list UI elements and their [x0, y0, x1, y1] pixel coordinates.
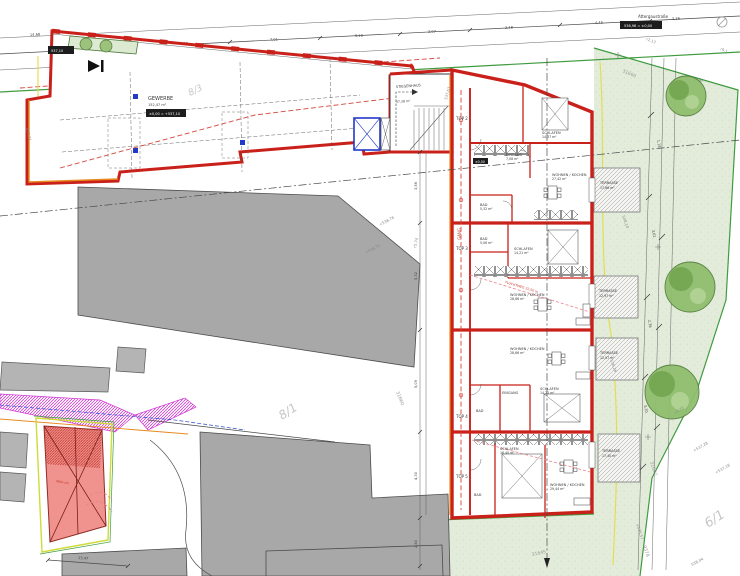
- bush-2: [100, 40, 112, 52]
- apartment-wing: FLUCHTWEG 22,50 m GANG ±0,00 TOP 2 SCHLA…: [450, 70, 595, 518]
- inset-building-4: [0, 472, 26, 502]
- dim-top-2: 7,01: [270, 38, 278, 42]
- storage-row-2: [474, 266, 588, 277]
- steel-column-3: [240, 140, 245, 145]
- inset-building-3: [0, 432, 28, 468]
- u1-wohnen-area: 27,42 m²: [552, 177, 567, 181]
- u3-bad: BAD: [476, 409, 484, 413]
- tree-2: [665, 262, 715, 312]
- terrace-4: TERRASSE 17,40 m²: [598, 434, 640, 482]
- dim-top-3: 5,10: [355, 34, 364, 38]
- tree-1: [666, 76, 706, 116]
- dim-top-6: 4,45: [595, 21, 603, 25]
- u1-eingang-area: 7,08 m²: [506, 157, 519, 161]
- street-elevation-badge-text: 536,98 = ±0,00: [624, 24, 652, 28]
- dim-left-2: 5,09: [414, 379, 418, 388]
- unit-1-id: TOP 2: [455, 116, 468, 121]
- dim-left-0: 3,56: [414, 181, 418, 190]
- dim-bottom-0: 13,47: [78, 556, 89, 561]
- corner-elevation-text: 537,10: [51, 49, 63, 53]
- unit-2-id: TOP 3: [455, 246, 468, 251]
- terrace-3-label: TERRASSE: [599, 351, 618, 355]
- storage-row-3: [474, 434, 588, 445]
- gewerbe-area: 152,47 m²: [148, 103, 167, 107]
- terrace-2: TERRASSE 12,97 m²: [594, 276, 638, 318]
- dim-left-1: 5,32: [414, 272, 418, 280]
- u3-wohnen-area: 28,66 m²: [510, 351, 525, 355]
- u2-schlafen-area: 14,21 m²: [514, 251, 529, 255]
- steel-column-1: [133, 94, 138, 99]
- terrace-2-label: TERRASSE: [598, 289, 617, 293]
- bush-1: [80, 38, 92, 50]
- u1-schlafen-area: 14,37 m²: [542, 135, 557, 139]
- dim-top-4: 2,07: [428, 30, 436, 34]
- steel-column-2: [133, 148, 138, 153]
- gewerbe-label: GEWERBE: [148, 96, 173, 102]
- dim-top-7: 3,36: [672, 17, 681, 21]
- u3-eingang: EINGANG: [502, 391, 519, 395]
- terrace-1: TERRASSE 17,66 m²: [594, 168, 640, 212]
- u1-bad-area: 5,32 m²: [480, 207, 493, 211]
- terrace-4-area: 17,40 m²: [602, 454, 617, 458]
- u4-wohnen-area: 29,44 m²: [550, 487, 565, 491]
- terrace-1-label: TERRASSE: [599, 181, 618, 185]
- tree-3: [645, 365, 699, 419]
- kitchen-row-u1: [534, 210, 578, 220]
- street-name-label: Attergaustraße: [638, 14, 669, 19]
- site-plan-canvas: 5,36 2,38 7,01 5,10 2,07 2,48 4,45 3,36 …: [0, 0, 740, 576]
- floor-plan-drawing: 5,36 2,38 7,01 5,10 2,07 2,48 4,45 3,36 …: [0, 0, 740, 576]
- unit-3-id: TOP 4: [455, 414, 468, 419]
- terrace-4-label: TERRASSE: [601, 449, 620, 453]
- terrace-1-area: 17,66 m²: [600, 186, 615, 190]
- dim-left-3: 4,30: [414, 471, 418, 480]
- u2-wohnen-area: 28,66 m²: [510, 297, 525, 301]
- terrace-2-area: 12,97 m²: [599, 294, 614, 298]
- u4-bad: BAD: [474, 493, 482, 497]
- corridor-label: GANG: [457, 228, 462, 240]
- dim-top-5: 2,48: [505, 26, 514, 30]
- sofa-icon: [576, 318, 590, 325]
- inset-building-2: [116, 347, 146, 373]
- u2-bad-area: 5,06 m²: [480, 241, 493, 245]
- u3-schlafen-area: 14,21 m²: [540, 391, 555, 395]
- gewerbe-badge-text: ±0,00 = +537,10: [149, 112, 180, 116]
- corridor-badge-text: ±0,00: [475, 160, 485, 164]
- dim-topleft: 14,68: [30, 32, 41, 37]
- dim-left-4: 2,40: [414, 539, 418, 548]
- u4-schlafen-area: 16,40 m²: [500, 451, 515, 455]
- demolition-hatch: [44, 426, 102, 468]
- terrace-3: TERRASSE 12,97 m²: [596, 338, 638, 380]
- unit-4-id: TOP 5: [455, 474, 468, 479]
